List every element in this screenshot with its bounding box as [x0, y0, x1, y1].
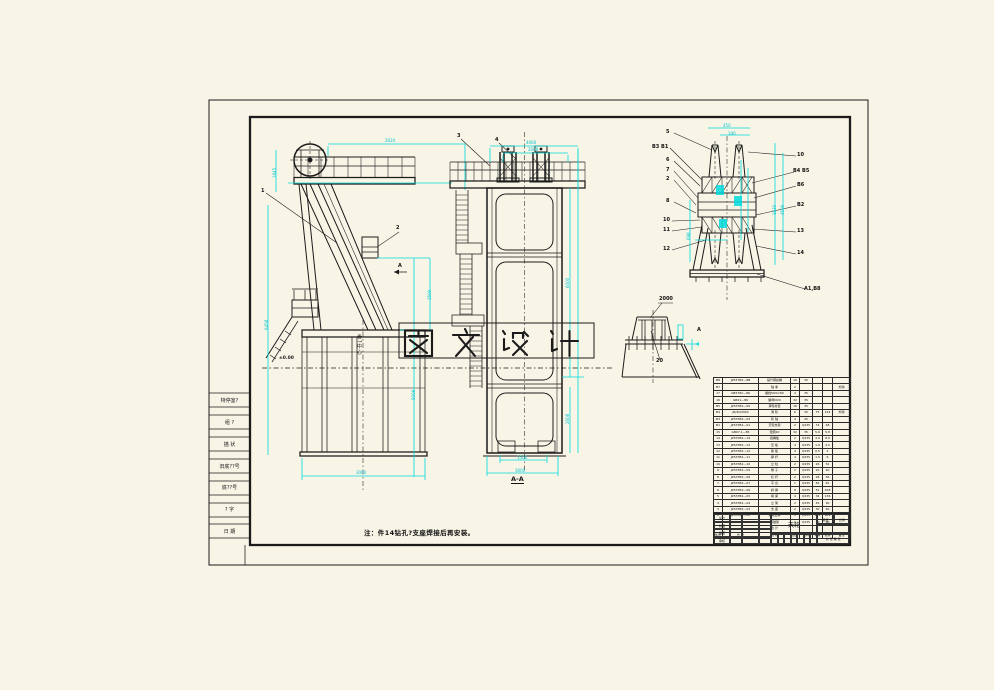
callout-label: 4	[495, 138, 498, 143]
callout-label: 2	[396, 226, 399, 231]
revision-strip-label: 特停室?	[209, 397, 250, 404]
callout-label: 12	[663, 247, 670, 252]
callout-label: 10	[797, 153, 804, 158]
view-left-elevation	[262, 141, 612, 490]
callout-label: 2	[666, 177, 669, 182]
callout-label: A	[398, 264, 402, 269]
revision-strip-label: 旧底??号	[209, 463, 250, 470]
callout-label: 8	[666, 199, 669, 204]
dimension-value: 3000	[515, 469, 525, 473]
callout-label: 1	[261, 189, 264, 194]
revision-strip-label: 日 期	[209, 528, 250, 535]
signature-cell	[742, 529, 759, 537]
section-label: A-A	[511, 476, 524, 484]
dimension-value: 6458	[265, 320, 269, 330]
dimension-value: 4060	[526, 141, 536, 145]
signature-cell	[730, 529, 742, 537]
ground-level-label: ±0.00	[279, 357, 294, 362]
dimension-lines-detail	[690, 128, 783, 265]
revision-strip-label: ? 字	[209, 506, 250, 513]
dimension-value: 450	[723, 124, 731, 128]
dimension-value: 4500	[781, 205, 785, 215]
view-support-detail	[622, 303, 700, 383]
dimension-value: 1630	[773, 205, 777, 215]
dimension-value: 5008	[412, 390, 416, 400]
signature-cell	[759, 537, 771, 545]
callout-label: 11	[663, 228, 670, 233]
dimension-value: 2024	[385, 139, 395, 143]
dimension-value: 6000	[566, 278, 570, 288]
signature-cell	[742, 537, 759, 545]
cad-drawing-canvas: 图 文 设 计 注：件14钻孔?支座焊接后再安装。 ±0.00 卷?中心 A-A…	[0, 0, 994, 690]
callout-label: B6	[797, 183, 804, 188]
dimension-lines-left	[268, 144, 465, 480]
signature-cell: 制图	[714, 522, 730, 530]
dimension-value: 698	[687, 232, 691, 240]
callout-label: A1,B8	[804, 287, 821, 292]
dimension-value: 2608	[566, 414, 570, 424]
dimension-value: 1500	[517, 456, 527, 460]
callout-label: 10	[663, 218, 670, 223]
stage-cell	[804, 534, 811, 544]
dimension-value: 1845	[273, 168, 277, 178]
callout-label: 3	[457, 134, 460, 139]
weight-cell: 重量	[817, 514, 834, 524]
revision-strip-label: 底??号	[209, 484, 250, 491]
signature-cell	[742, 514, 759, 522]
watermark-text: 图 文 设 计	[399, 323, 594, 358]
title-block: 设计制图描图审核 天轮 重量 比例 共 张 第 张	[713, 513, 850, 545]
revision-strip-label: 描 状	[209, 441, 250, 448]
dimension-value: 2008	[528, 148, 538, 152]
signature-cell: 审核	[714, 537, 730, 545]
hoist-center-label: 卷?中心	[356, 334, 361, 356]
callout-label: A	[697, 328, 701, 333]
callout-label: 2000	[659, 297, 673, 302]
signature-cell	[759, 514, 771, 522]
callout-label: B2	[797, 203, 804, 208]
callout-label: 20	[656, 359, 663, 364]
callout-label: 6	[666, 158, 669, 163]
callout-label: B4 B5	[793, 169, 809, 174]
signature-cell: 描图	[714, 529, 730, 537]
drawing-note: 注：件14钻孔?支座焊接后再安装。	[364, 530, 475, 537]
signature-cell	[730, 522, 742, 530]
signature-cell: 设计	[714, 514, 730, 522]
scale-cell: 比例	[834, 514, 849, 524]
stage-cell	[778, 534, 785, 544]
mid-cell	[817, 524, 849, 534]
signature-cell	[759, 522, 771, 530]
revision-strip-label: 组 ?	[209, 419, 250, 426]
dimension-value: 340	[728, 132, 736, 136]
callout-label: B3 B1	[652, 145, 668, 150]
callout-label: 13	[797, 229, 804, 234]
callout-label: 5	[666, 130, 669, 135]
title-block-signatures: 设计制图描图审核	[714, 514, 771, 544]
dimension-value: 1500	[428, 290, 432, 300]
sheet-count-cell: 共 张 第 张	[817, 534, 849, 544]
stage-cell	[810, 534, 817, 544]
drawing-name-cell: 天轮	[771, 514, 817, 534]
stage-mark-cells	[771, 534, 817, 544]
signature-cell	[730, 514, 742, 522]
signature-cell	[730, 537, 742, 545]
callout-label: 7	[666, 168, 669, 173]
stage-cell	[791, 534, 798, 544]
signature-cell	[759, 529, 771, 537]
callout-label: 14	[797, 251, 804, 256]
signature-cell	[742, 522, 759, 530]
dimension-value: 3000	[356, 471, 366, 475]
